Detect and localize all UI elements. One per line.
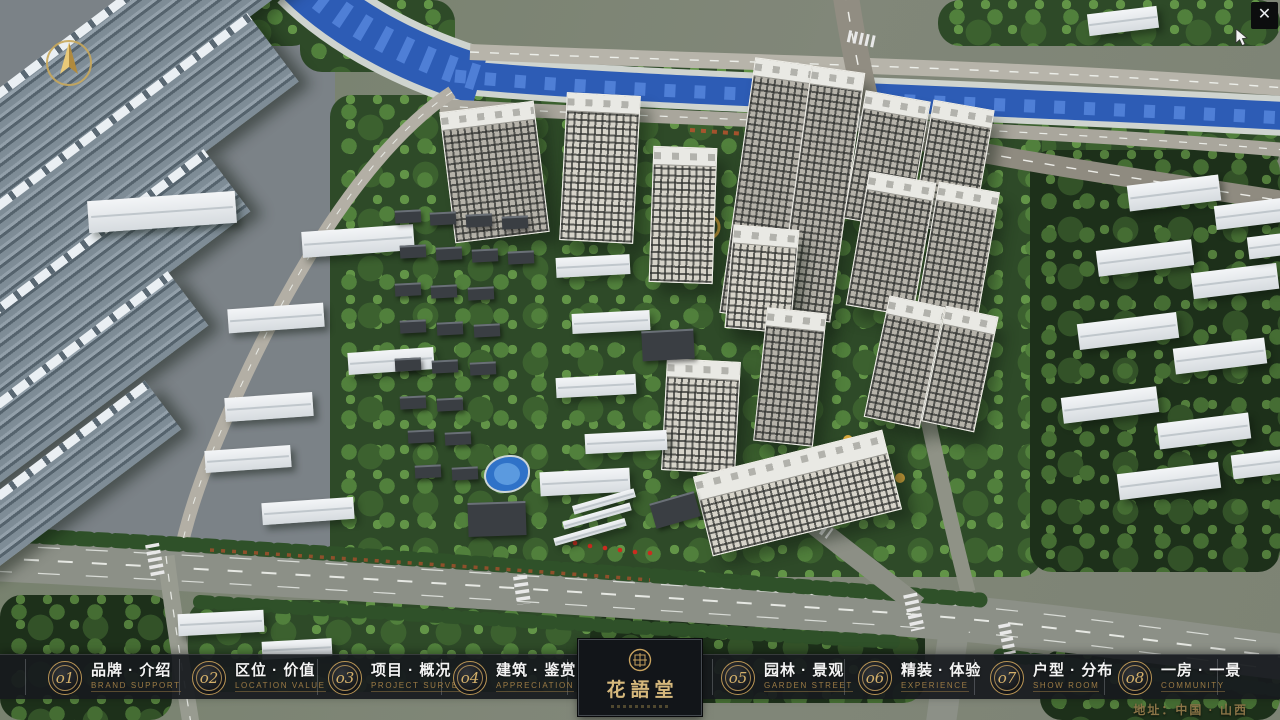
nav-label-en: BRAND SUPPORT	[91, 682, 181, 692]
courtyard-villa	[432, 359, 459, 373]
nav-item-architecture[interactable]: o4 建筑 · 鉴赏 APPRECIATION	[442, 655, 567, 700]
courtyard-villa	[400, 319, 427, 333]
tower	[649, 146, 718, 284]
entrance-flags	[573, 541, 653, 556]
courtyard-villa	[431, 284, 458, 298]
mouse-cursor	[1235, 29, 1250, 47]
courtyard-villa	[415, 464, 442, 478]
nav-label-en: LOCATION VALUE	[235, 682, 326, 692]
nav-item-project[interactable]: o3 项目 · 概况 PROJECT SURVEY	[318, 655, 441, 700]
courtyard-villa	[445, 431, 472, 445]
courtyard-villa	[437, 321, 464, 335]
clubhouse	[641, 329, 694, 362]
white-slab	[556, 374, 637, 398]
nav-label-en: APPRECIATION	[496, 682, 574, 692]
nav-label-cn: 品牌 · 介绍	[91, 663, 181, 678]
nav-label-cn: 建筑 · 鉴赏	[496, 663, 576, 678]
project-address: 地址：中国 · 山西	[1133, 701, 1248, 718]
courtyard-villa	[452, 466, 479, 480]
nav-label-en: COMMUNITY	[1161, 682, 1225, 692]
nav-label-cn: 区位 · 价值	[235, 663, 326, 678]
nav-label-en: GARDEN STREET	[764, 682, 853, 692]
close-icon: ✕	[1258, 6, 1271, 23]
courtyard-villa	[395, 209, 422, 223]
nav-item-floorplan[interactable]: o7 户型 · 分布 SHOW ROOM	[975, 655, 1104, 700]
courtyard-villa	[437, 397, 464, 411]
nav-number-badge: o4	[453, 661, 487, 695]
nav-number-badge: o3	[328, 661, 362, 695]
nav-item-location[interactable]: o2 区位 · 价值 LOCATION VALUE	[180, 655, 317, 700]
white-slab	[572, 310, 651, 334]
nav-item-interior[interactable]: o6 精装 · 体验 EXPERIENCE	[845, 655, 974, 700]
nav-label-en: SHOW ROOM	[1033, 682, 1099, 692]
courtyard-villa	[430, 211, 457, 225]
nav-label-cn: 园林 · 景观	[764, 663, 853, 678]
nav-item-brand[interactable]: o1 品牌 · 介绍 BRAND SUPPORT	[26, 655, 179, 700]
courtyard-villa	[508, 250, 535, 264]
project-logo-title: 花語堂	[601, 675, 678, 702]
courtyard-villa	[408, 429, 435, 443]
white-slab	[585, 430, 668, 454]
nav-number-badge: o6	[858, 661, 892, 695]
courtyard-villa	[472, 248, 499, 262]
logo-tagline-decor	[611, 705, 669, 708]
nav-number-badge: o1	[48, 661, 82, 695]
nav-label-cn: 一房 · 一景	[1161, 663, 1241, 678]
nav-label-cn: 户型 · 分布	[1033, 663, 1113, 678]
white-slab	[1247, 233, 1280, 260]
courtyard-villa	[436, 246, 463, 260]
entrance-pavilion	[467, 501, 526, 537]
courtyard-villa	[400, 244, 427, 258]
nav-number-badge: o2	[192, 661, 226, 695]
courtyard-villa	[470, 361, 497, 375]
tower	[661, 358, 741, 474]
white-slab	[177, 610, 264, 636]
courtyard-villa	[466, 213, 493, 227]
nav-number-badge: o5	[721, 661, 755, 695]
courtyard-villa	[400, 395, 427, 409]
nav-label-cn: 精装 · 体验	[901, 663, 981, 678]
nav-number-badge: o8	[1118, 661, 1152, 695]
nav-label-en: EXPERIENCE	[901, 682, 969, 692]
courtyard-villa	[474, 323, 501, 337]
project-logo-panel[interactable]: 花語堂	[578, 639, 702, 716]
nav-number-badge: o7	[990, 661, 1024, 695]
close-button[interactable]: ✕	[1251, 2, 1278, 29]
courtyard-villa	[502, 215, 529, 229]
compass-north-icon	[40, 34, 98, 92]
courtyard-villa	[468, 286, 495, 300]
nav-item-garden[interactable]: o5 园林 · 景观 GARDEN STREET	[713, 655, 844, 700]
white-slab	[556, 254, 631, 278]
nav-item-views[interactable]: o8 一房 · 一景 COMMUNITY	[1105, 655, 1217, 700]
courtyard-villa	[395, 357, 422, 371]
seal-icon	[628, 648, 652, 672]
courtyard-villa	[395, 282, 422, 296]
masterplan-viewport[interactable]: ✕ o1 品牌 · 介绍 BRAND SUPPORT o2 区位 · 价值 LO…	[0, 0, 1280, 720]
tower	[559, 92, 641, 244]
